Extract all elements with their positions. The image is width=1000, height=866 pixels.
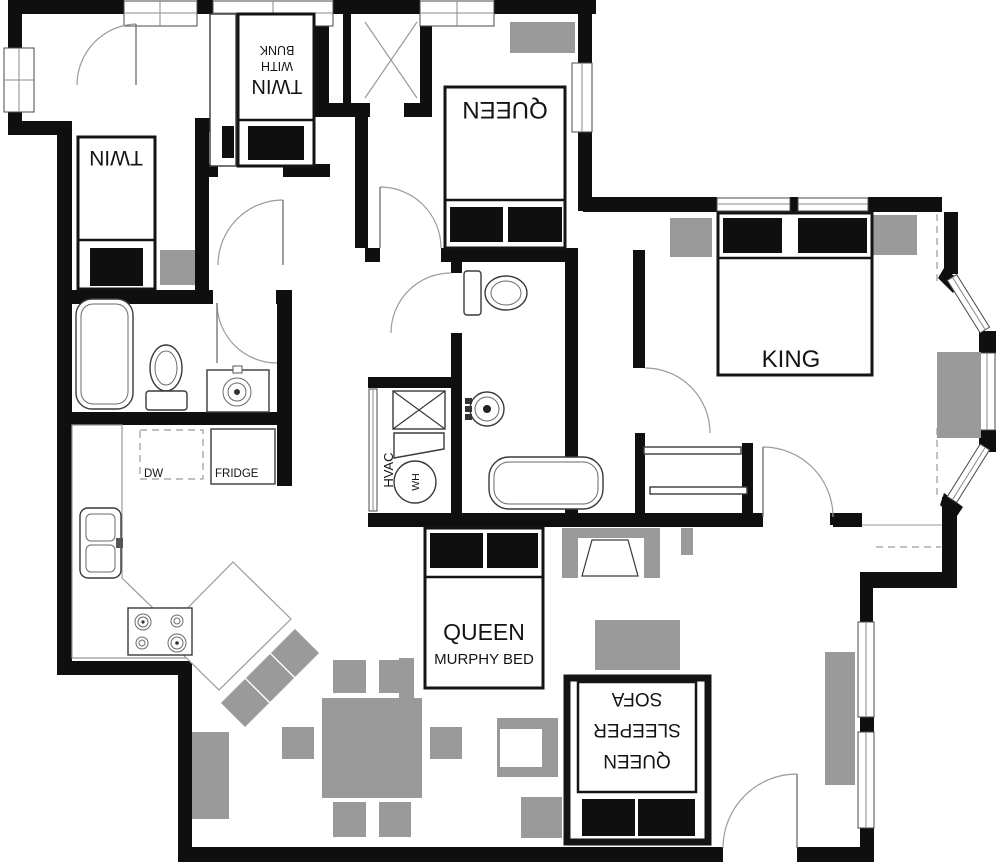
sideboard <box>192 732 229 819</box>
kitchen-sink <box>80 508 123 578</box>
king-bay-dresser <box>937 352 981 438</box>
sink-left <box>207 366 269 412</box>
bunk-label-line3: BUNK <box>259 43 294 57</box>
bunk-label-line1: TWIN <box>251 75 302 97</box>
sofa-label-line1: QUEEN <box>603 750 671 771</box>
pillow <box>487 533 538 568</box>
media-console <box>825 652 855 785</box>
pillow <box>723 218 782 253</box>
dining-chair <box>379 802 411 837</box>
bunk-label-line2: WITH <box>261 59 293 73</box>
murphy-label-line1: QUEEN <box>443 619 525 645</box>
pillow <box>450 207 503 242</box>
pillow <box>248 126 304 160</box>
hvac-label: HVAC <box>381 452 396 487</box>
fireplace-stub <box>681 528 693 555</box>
queen-bed-label: QUEEN <box>462 96 547 123</box>
louver-hvac <box>369 389 377 511</box>
king-nightstand-right <box>873 215 917 255</box>
dining-chair <box>379 660 412 693</box>
floor-plan: TWIN TWIN WITH BUNK QUEEN KING QUEEN MUR… <box>0 0 1000 866</box>
window-right-1 <box>858 622 874 717</box>
twin-nightstand <box>160 250 195 285</box>
window-left <box>4 48 34 112</box>
dining-chair <box>282 727 314 759</box>
bunk-rail-mark <box>222 126 234 158</box>
stove <box>128 608 192 655</box>
twin-bed-label: TWIN <box>89 146 143 169</box>
king-nightstand-left <box>670 218 712 257</box>
queen-dresser <box>510 22 575 53</box>
king-bed-label: KING <box>762 346 821 373</box>
window-king-2 <box>798 198 868 211</box>
murphy-label-line2: MURPHY BED <box>434 651 534 668</box>
dishwasher-label: DW <box>144 468 163 480</box>
bathtub-left <box>76 299 133 409</box>
coffee-table <box>595 620 680 670</box>
sofa-cushion <box>582 799 635 836</box>
armchair-seat <box>500 729 542 767</box>
fireplace-firebox <box>582 540 638 576</box>
pillow <box>508 207 562 242</box>
pillow <box>90 248 143 286</box>
fridge-label: FRIDGE <box>215 468 259 480</box>
window-bay-center <box>979 353 995 430</box>
water-heater-label: WH <box>410 473 422 491</box>
window-right-2 <box>858 732 874 828</box>
window-top-queen <box>420 1 494 26</box>
window-king-1 <box>717 198 790 211</box>
pillow <box>430 533 483 568</box>
dining-table <box>322 698 422 798</box>
dining-chair <box>333 802 366 837</box>
sofa-cushion <box>638 799 695 836</box>
pillow <box>798 218 867 253</box>
bathtub-center <box>489 457 603 509</box>
floor-plan-page: TWIN TWIN WITH BUNK QUEEN KING QUEEN MUR… <box>0 0 1000 866</box>
window-queen-right <box>572 63 592 132</box>
sofa-label-line3: SOFA <box>611 688 662 709</box>
dining-chair <box>430 727 462 759</box>
sofa-label-line2: SLEEPER <box>593 719 681 740</box>
dining-chair <box>333 660 366 693</box>
ottoman <box>521 797 562 838</box>
window-top-twin <box>124 1 197 26</box>
fireplace-top <box>562 528 660 538</box>
